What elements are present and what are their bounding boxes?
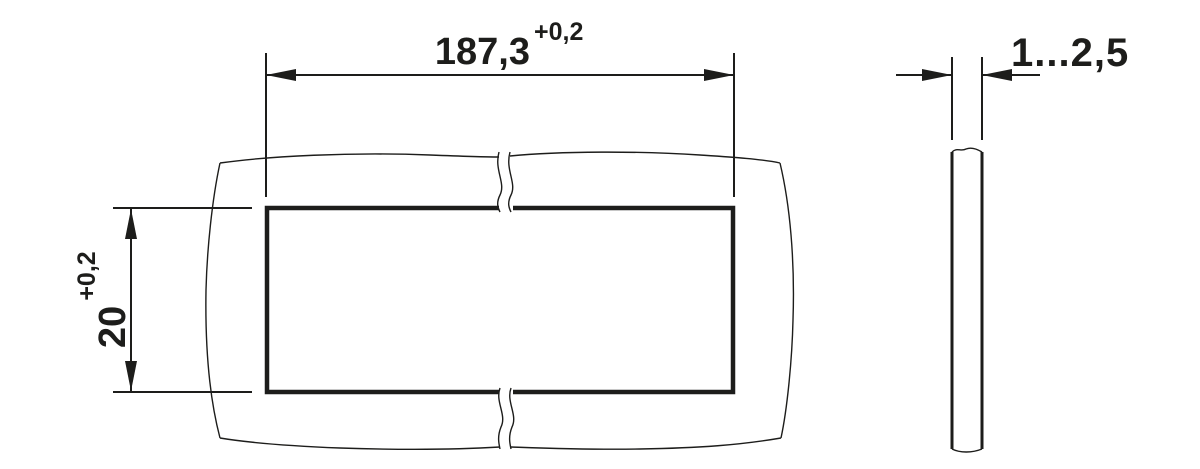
thickness-arrowhead-right	[982, 69, 1012, 81]
cutout-opening	[267, 208, 733, 392]
width-value-label: 187,3	[435, 31, 530, 73]
height-value-label: 20	[92, 306, 134, 348]
panel-side-profile	[952, 148, 982, 452]
height-arrowhead-top	[125, 209, 137, 239]
height-arrowhead-bottom	[125, 361, 137, 391]
side-profile-top-break	[952, 148, 982, 152]
width-arrowhead-right	[704, 69, 734, 81]
thickness-arrowhead-left	[922, 69, 952, 81]
width-tolerance-label: +0,2	[534, 18, 583, 46]
break-line-top	[498, 152, 513, 212]
break-line-bottom	[499, 388, 514, 449]
dimension-arrowheads	[125, 69, 1012, 391]
technical-drawing-canvas: 187,3 +0,2 20 +0,2 1...2,5	[0, 0, 1200, 469]
panel-cutout-drawing: 187,3 +0,2 20 +0,2 1...2,5	[0, 0, 1200, 469]
height-tolerance-label: +0,2	[73, 251, 101, 300]
dimension-labels: 187,3 +0,2 20 +0,2 1...2,5	[73, 18, 1129, 348]
side-view	[896, 57, 1040, 452]
thickness-value-label: 1...2,5	[1011, 31, 1129, 75]
front-view	[113, 53, 793, 449]
side-profile-bottom-break	[952, 449, 982, 452]
width-arrowhead-left	[266, 69, 296, 81]
drawing-linework	[113, 53, 1040, 452]
